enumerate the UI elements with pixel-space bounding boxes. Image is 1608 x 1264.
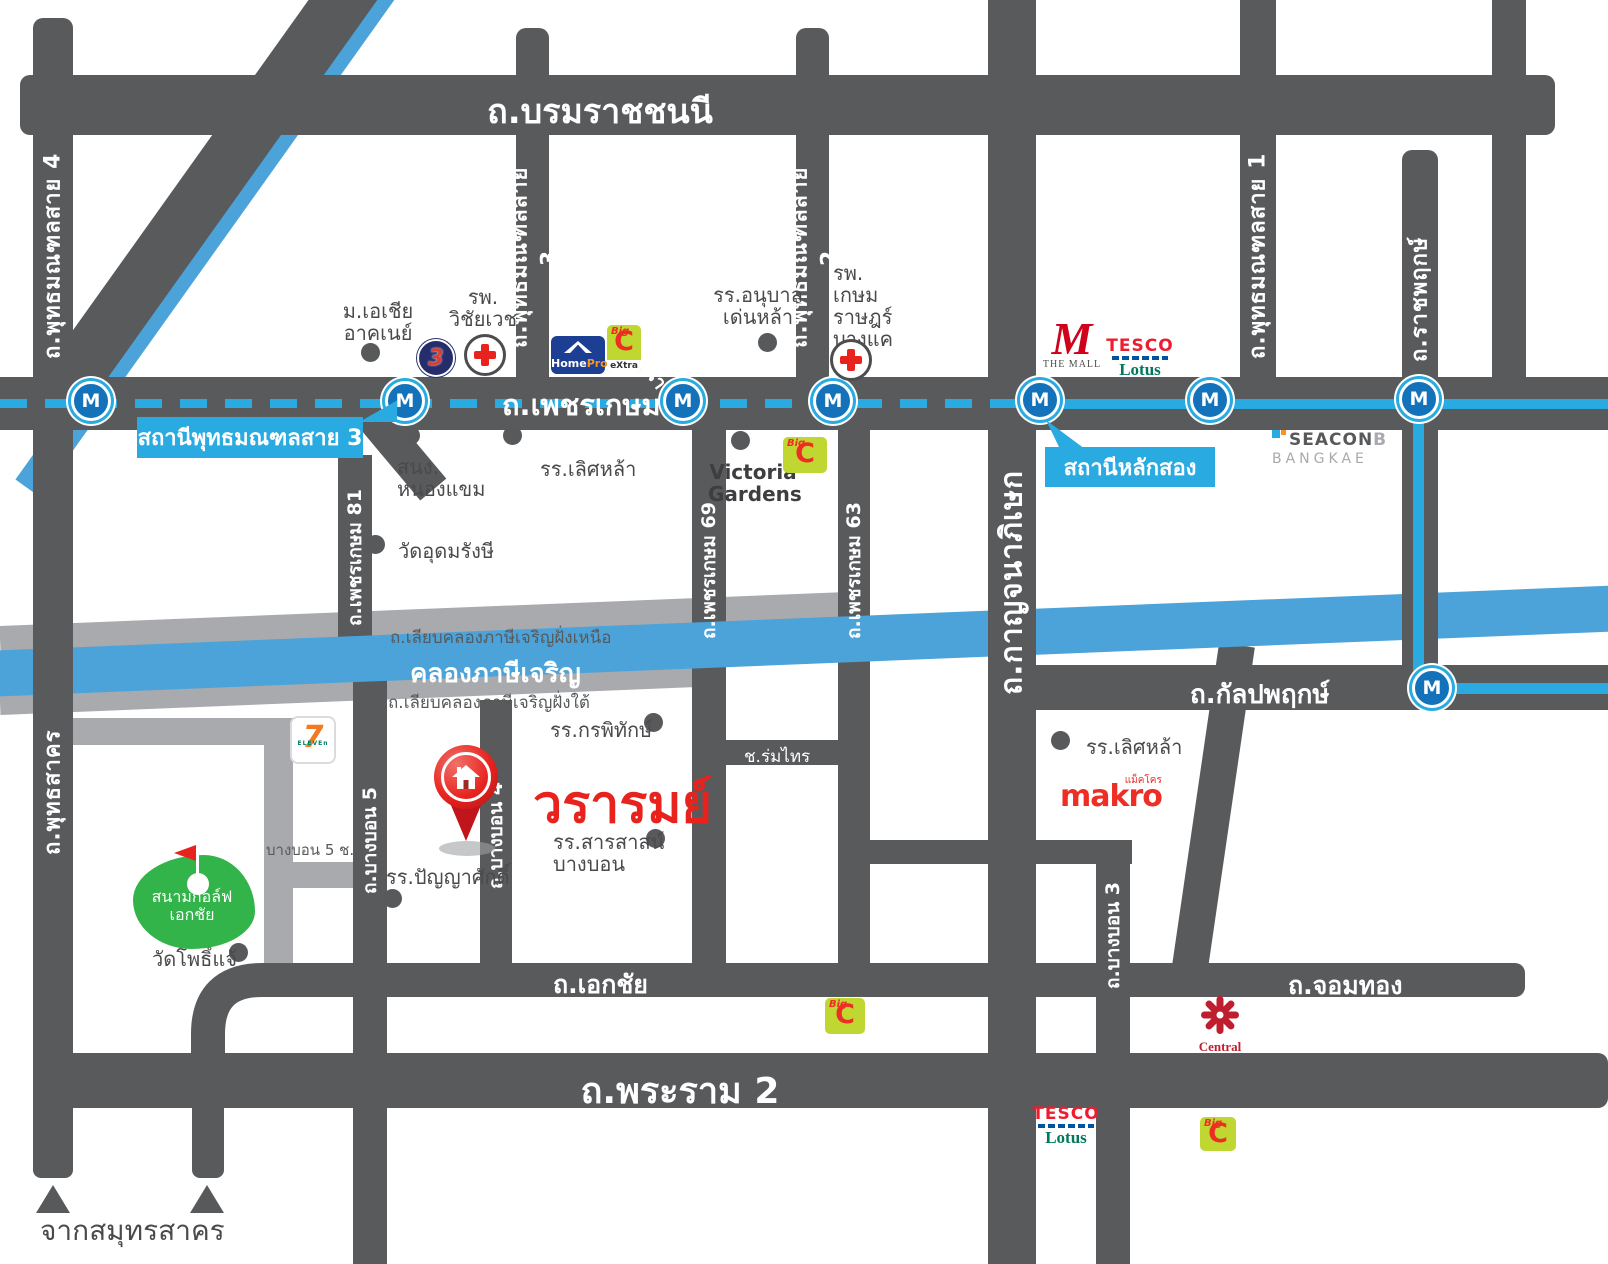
road-bang-bon-5 (353, 640, 387, 1264)
golf-flag-icon (174, 845, 196, 861)
road-label-ekkachai: ถ.เอกชัย (553, 965, 648, 1005)
canal-label: คลองภาษีเจริญ (410, 653, 581, 694)
note-from-samut-sakhon: จากสมุทรสาคร (40, 1216, 225, 1247)
place-dot-icon (361, 343, 380, 362)
map-canvas: ถ.บรมราชชนนี ถ.เพชรเกษม ถ.พระราม 2 ถ.เอก… (0, 0, 1608, 1264)
place-lertlah-school-phetkasem: รร.เลิศหล้า (540, 458, 636, 480)
place-dot-icon (401, 426, 420, 445)
place-wat-pho-chae: วัดโพธิ์แจ้ (152, 948, 237, 970)
mrt-station-icon[interactable]: M (1187, 377, 1233, 423)
place-dot-icon (503, 426, 522, 445)
road-label-bangbon5-soi5: บางบอน 5 ช.5 (266, 842, 364, 859)
place-dot-icon (366, 535, 385, 554)
tesco-lotus-logo: TESCO Lotus (1032, 1106, 1100, 1146)
station-callout-lak-song: สถานีหลักสอง (1045, 447, 1215, 487)
road-label-liap-khlong-nuea: ถ.เลียบคลองภาษีเจริญฝั่งเหนือ (390, 629, 611, 648)
mrt-line-solid-phetkasem (1040, 399, 1608, 409)
road-label-phutthamonthon-sai1: ถ.พุทธมณฑลสาย 1 (1240, 148, 1276, 363)
road-label-borommaratchachonnani: ถ.บรมราชชนนี (460, 84, 740, 138)
bigc-logo: Big C (1200, 1117, 1236, 1151)
place-anuban-denla-school: รร.อนุบาล เด่นหล้า (712, 284, 804, 328)
bigc-extra-logo: Big C eXtra (607, 325, 641, 373)
place-ekachai-golf-course: สนามกอล์ฟ เอกชัย (142, 888, 242, 925)
place-lertlah-school-kanlapaphruek: รร.เลิศหล้า (1086, 736, 1182, 758)
central-logo: Central (1196, 993, 1244, 1055)
road-connector-63-bangbon3 (840, 840, 1132, 864)
road-label-phuttha-sakhon: ถ.พุทธสาคร (33, 695, 73, 890)
place-dot-icon (758, 333, 777, 352)
road-label-chomthong: ถ.จอมทอง (1288, 966, 1402, 1006)
road-seven-access-horizontal (73, 718, 295, 745)
road-samut-sakhon-stub-east (192, 1080, 224, 1178)
place-panyasak-school: รร.ปัญญาศักดิ์ (386, 866, 510, 888)
road-label-kanlapaphruek: ถ.กัลปพฤกษ์ (1190, 674, 1330, 715)
direction-arrow-icon (190, 1185, 224, 1213)
place-dot-icon (1051, 731, 1070, 750)
channel3-icon: 3 (417, 339, 455, 377)
road-label-kanchanaphisek: ถ.กาญจนาภิเษก (988, 435, 1036, 730)
seacon-square-icon (1272, 430, 1280, 438)
place-dot-icon (731, 431, 750, 450)
road-label-soi-rom-sai: ช.ร่มไทร (744, 743, 810, 770)
road-borommaratchachonnani (20, 75, 1555, 135)
place-wichaivej-hospital: รพ. วิชัยเวช (440, 286, 526, 330)
place-asia-university: ม.เอเชีย อาคเนย์ (330, 300, 426, 344)
project-name: วรารมย์ (533, 762, 712, 845)
place-nong-khaem-district-office: สนง. หนองแขม (397, 456, 487, 500)
road-label-phutthamonthon-sai4: ถ.พุทธมณฑลสาย 4 (33, 148, 73, 363)
road-label-liap-khlong-tai: ถ.เลียบคลองภาษีเจริญฝั่งใต้ (388, 694, 590, 713)
place-kasemrad-bangkhae-hospital: รพ. เกษมราษฎร์ บางแค (833, 262, 933, 350)
mrt-station-icon[interactable]: M (68, 378, 114, 424)
mrt-station-icon[interactable]: M (810, 378, 856, 424)
mrt-station-icon[interactable]: M (1396, 376, 1442, 422)
mrt-line-solid-ratchaphruek (1413, 404, 1424, 694)
mrt-station-icon[interactable]: M (1017, 377, 1063, 423)
homepro-logo: HomePro (551, 336, 605, 374)
place-kornpitack-school: รร.กรพิทักษ์ (550, 719, 652, 741)
road-topright-unnamed (1492, 0, 1526, 430)
seacon-square-icon (1281, 430, 1286, 435)
road-label-phetkasem: ถ.เพชรเกษม (502, 382, 661, 428)
pin-ring (441, 752, 491, 802)
bigc-logo: Big C (783, 437, 827, 473)
tesco-lotus-logo: TESCO Lotus (1106, 338, 1174, 378)
road-label-bang-bon-5: ถ.บางบอน 5 (353, 745, 387, 935)
central-flower-icon (1198, 993, 1242, 1037)
road-label-phutthamonthon-sai2: ถ.พุทธมณฑลสาย 2 (796, 155, 829, 360)
seacon-bangkae-logo: SEACONB BANGKAE (1272, 430, 1386, 467)
road-label-bang-bon-3: ถ.บางบอน 3 (1096, 845, 1130, 1025)
homepro-roof-icon (564, 341, 592, 353)
pin-shadow (439, 841, 495, 856)
road-bangbon5-soi5 (293, 862, 356, 888)
house-icon (450, 762, 482, 792)
road-label-rama2: ถ.พระราม 2 (540, 1062, 820, 1119)
pin-head (434, 745, 498, 809)
direction-arrow-icon (36, 1185, 70, 1213)
seven-eleven-icon: 7 ELEVEn (290, 716, 336, 764)
hospital-cross-icon (464, 334, 506, 376)
place-dot-icon (383, 889, 402, 908)
place-wat-udom-rangsi: วัดอุดมรังษี (398, 540, 494, 562)
mrt-station-icon[interactable]: M (1409, 665, 1455, 711)
makro-logo: แม็คโคร makro (1060, 782, 1162, 812)
road-label-phetkasem-81: ถ.เพชรเกษม 81 (338, 468, 372, 648)
road-label-ratchaphruek: ถ.ราชพฤกษ์ (1402, 222, 1438, 377)
hospital-cross-icon (830, 339, 872, 381)
the-mall-logo: M THE MALL (1042, 318, 1102, 370)
location-pin-icon[interactable] (432, 745, 500, 863)
road-ekkachai-curve (180, 950, 330, 1095)
station-callout-phutthamonthon-sai3: สถานีพุทธมณฑลสาย 3 (137, 417, 363, 458)
road-samut-sakhon-stub-west (33, 1100, 73, 1178)
mrt-station-icon[interactable]: M (660, 378, 706, 424)
bigc-logo: Big C (825, 998, 865, 1034)
road-label-phetkasem-63: ถ.เพชรเกษม 63 (838, 478, 870, 663)
